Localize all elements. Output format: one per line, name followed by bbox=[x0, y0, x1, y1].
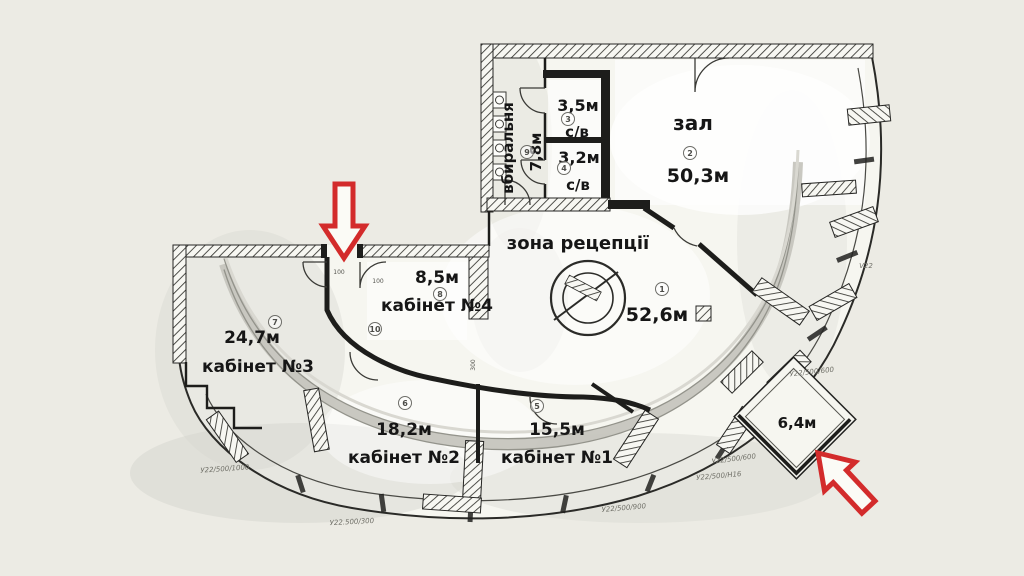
floor-plan-svg: зал 50,3м 3,5м с/в 3,2м с/в вбиральня 7,… bbox=[0, 0, 1024, 576]
marker-2: 2 bbox=[684, 147, 697, 160]
dim-300: 300 bbox=[470, 359, 477, 371]
top-exterior-wall bbox=[487, 44, 873, 58]
svg-text:9: 9 bbox=[524, 148, 530, 157]
marker-4: 4 bbox=[558, 162, 571, 175]
svg-text:10: 10 bbox=[369, 325, 381, 334]
dim-100-b: 100 bbox=[372, 278, 384, 285]
marker-6: 6 bbox=[399, 397, 412, 410]
marker-8: 8 bbox=[434, 288, 447, 301]
svg-text:6: 6 bbox=[402, 399, 408, 408]
floor-plan-screenshot: зал 50,3м 3,5м с/в 3,2м с/в вбиральня 7,… bbox=[0, 0, 1024, 576]
svg-text:1: 1 bbox=[659, 285, 665, 294]
office2-name: кабінет №2 bbox=[348, 448, 460, 468]
balcony-area: 6,4м bbox=[778, 414, 817, 432]
marker-1: 1 bbox=[656, 283, 669, 296]
office1-name: кабінет №1 bbox=[501, 448, 613, 468]
marker-3: 3 bbox=[562, 113, 575, 126]
office2-area: 18,2м bbox=[376, 420, 432, 440]
marker-9: 9 bbox=[521, 146, 534, 159]
wc-top-area: 3,5м bbox=[557, 96, 598, 115]
dim-100-a: 100 bbox=[333, 269, 345, 276]
hall-name: зал bbox=[673, 111, 713, 135]
wc-bottom-name: с/в bbox=[566, 176, 590, 194]
svg-text:3: 3 bbox=[565, 115, 571, 124]
marker-7: 7 bbox=[269, 316, 282, 329]
office3-top-wall bbox=[175, 245, 325, 257]
reception-area: 52,6м bbox=[626, 304, 688, 326]
reception-name: зона рецепції bbox=[507, 233, 649, 254]
office4-area: 8,5м bbox=[415, 268, 459, 288]
office3-name: кабінет №3 bbox=[202, 357, 314, 377]
restroom-left-wall bbox=[481, 44, 493, 212]
svg-text:5: 5 bbox=[534, 402, 540, 411]
spec-v22: V22 bbox=[859, 262, 873, 270]
reception-column bbox=[696, 306, 711, 321]
marker-5: 5 bbox=[531, 400, 544, 413]
office1-area: 15,5м bbox=[529, 420, 585, 440]
marker-10: 10 bbox=[369, 323, 382, 336]
office3-area: 24,7м bbox=[224, 328, 280, 348]
svg-text:2: 2 bbox=[687, 149, 693, 158]
office3-left-wall bbox=[173, 245, 186, 363]
svg-text:8: 8 bbox=[437, 290, 443, 299]
spec-300: У22.500/300 bbox=[329, 517, 374, 527]
svg-text:4: 4 bbox=[561, 164, 567, 173]
restroom-name: вбиральня bbox=[499, 102, 517, 194]
svg-text:7: 7 bbox=[272, 318, 278, 327]
office4-top-wall bbox=[361, 245, 489, 257]
hall-area: 50,3м bbox=[667, 165, 729, 187]
